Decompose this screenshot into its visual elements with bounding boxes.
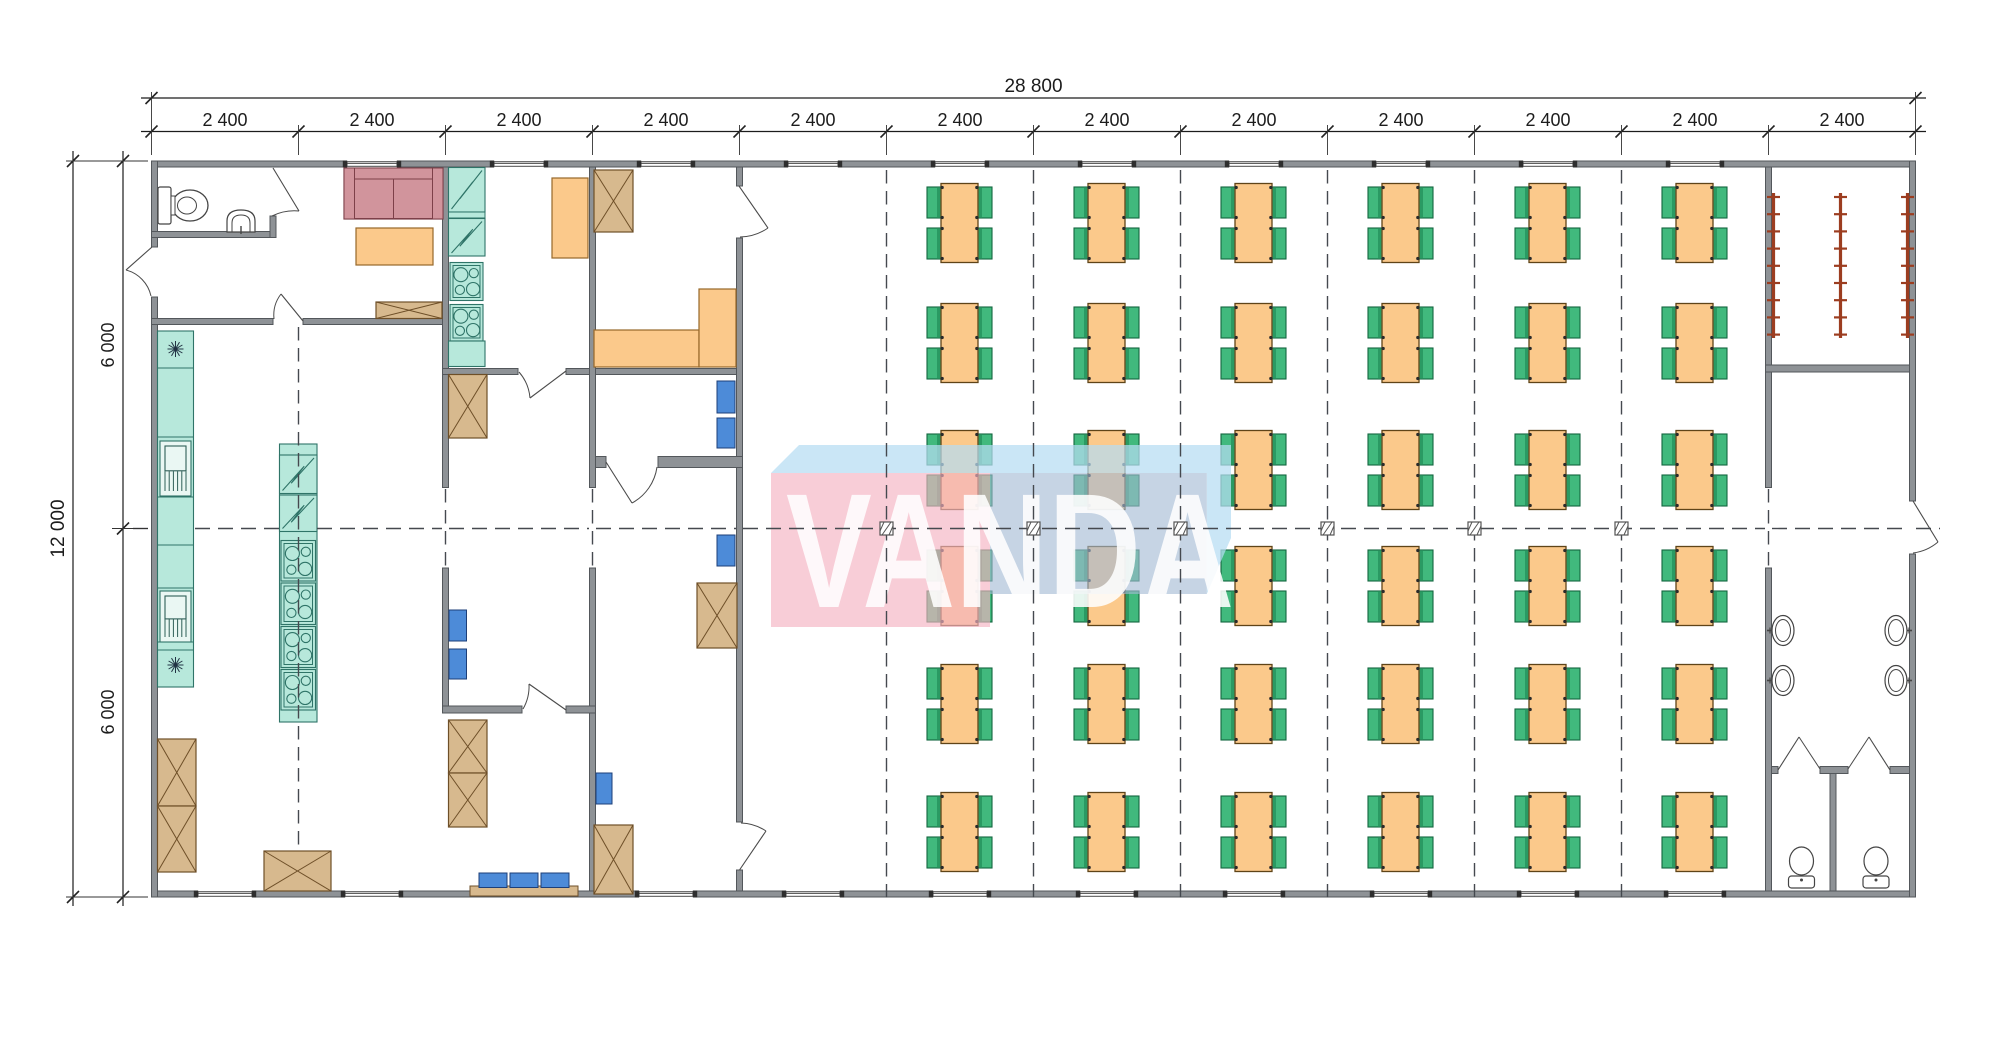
- svg-text:2 400: 2 400: [937, 110, 982, 130]
- svg-text:28 800: 28 800: [1004, 76, 1062, 97]
- svg-text:2 400: 2 400: [1084, 110, 1129, 130]
- svg-text:2 400: 2 400: [790, 110, 835, 130]
- svg-text:2 400: 2 400: [1819, 110, 1864, 130]
- svg-text:2 400: 2 400: [1525, 110, 1570, 130]
- svg-text:2 400: 2 400: [1378, 110, 1423, 130]
- svg-text:2 400: 2 400: [496, 110, 541, 130]
- svg-text:2 400: 2 400: [1672, 110, 1717, 130]
- svg-text:2 400: 2 400: [1231, 110, 1276, 130]
- svg-text:VANDA: VANDA: [786, 459, 1234, 642]
- svg-text:2 400: 2 400: [349, 110, 394, 130]
- svg-text:6 000: 6 000: [98, 322, 118, 367]
- svg-text:2 400: 2 400: [202, 110, 247, 130]
- svg-text:2 400: 2 400: [643, 110, 688, 130]
- svg-text:6 000: 6 000: [98, 689, 118, 734]
- svg-text:12 000: 12 000: [48, 499, 69, 557]
